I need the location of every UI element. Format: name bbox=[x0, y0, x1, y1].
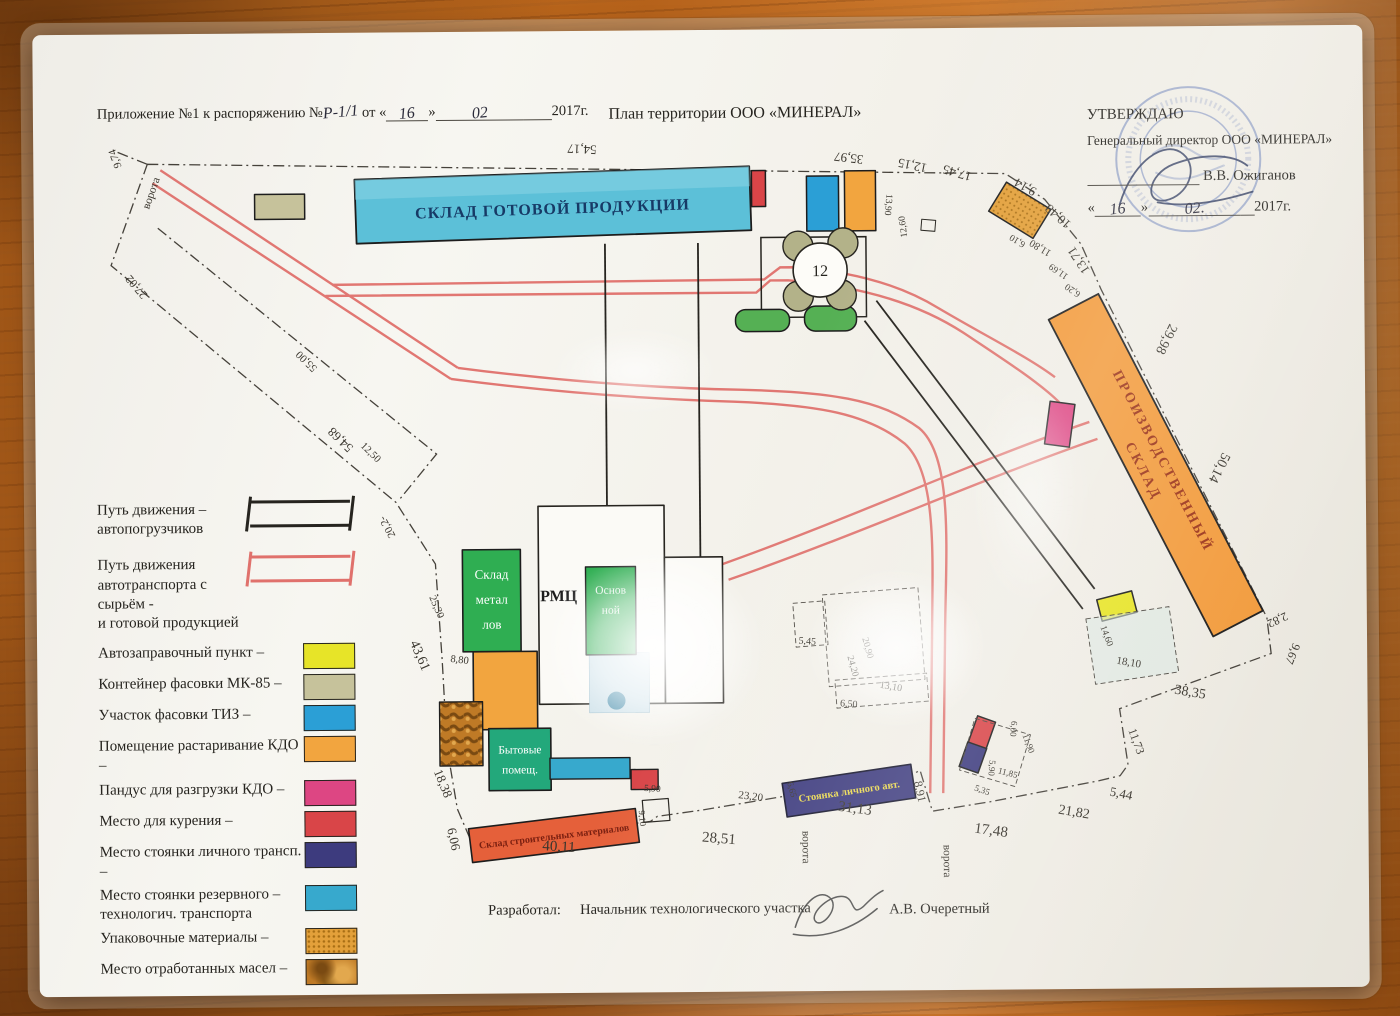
legend-item: Путь движенияавтотранспорта с сырьём -и … bbox=[97, 555, 355, 634]
legend-item: Путь движения –автопогрузчиков bbox=[97, 500, 354, 540]
annex-ot: от « bbox=[362, 104, 386, 120]
legend-item-symbol bbox=[305, 885, 357, 911]
dimension-label: 5,45 bbox=[798, 635, 816, 647]
dimension-label: 23,20 bbox=[738, 789, 765, 804]
dimension-label: 11,85 bbox=[997, 765, 1019, 780]
legend-item-label: Помещение растаривание КДО – bbox=[99, 736, 304, 776]
annex-line: Приложение №1 к распоряжению №Р-1/1 от «… bbox=[97, 102, 589, 124]
dimension-label: 9,10 bbox=[637, 810, 648, 827]
dimension-label: 27,02 bbox=[122, 272, 150, 302]
dimension-label: 31,13 bbox=[837, 799, 873, 819]
dimension-label: 13,10 bbox=[879, 680, 903, 695]
legend-item-label: Контейнер фасовки МК-85 – bbox=[98, 674, 303, 695]
legend-item: Контейнер фасовки МК-85 – bbox=[98, 674, 355, 702]
parking-box-br bbox=[959, 742, 987, 773]
building-label-metal-2: метал bbox=[476, 592, 509, 607]
smoking-box-top bbox=[751, 170, 765, 206]
dimension-label: 10,48 bbox=[1042, 201, 1074, 232]
dimension-label: 38,35 bbox=[1173, 683, 1207, 703]
director-name: В.В. Ожиганов bbox=[1203, 167, 1296, 184]
approval-date-line: «16»02.2017г. bbox=[1088, 198, 1388, 217]
dimension-label: 17,48 bbox=[973, 821, 1009, 841]
legend-item: Упаковочные материалы – bbox=[100, 928, 357, 956]
green-pad-2 bbox=[804, 306, 856, 331]
tank-cluster: 12 bbox=[783, 228, 859, 312]
dimension-label: 24,20 bbox=[845, 655, 860, 679]
kdo-box-top bbox=[844, 171, 875, 231]
legend-item-label: Место отработанных масел – bbox=[101, 959, 306, 980]
dimension-label: 50,14 bbox=[1205, 450, 1232, 485]
legend-item: Пандус для разгрузки КДО – bbox=[99, 779, 356, 807]
dimension-label: 8,80 bbox=[450, 654, 470, 667]
legend-item: Участок фасовки ТИЗ – bbox=[99, 705, 356, 733]
approval-month-handwritten: 02. bbox=[1183, 199, 1205, 219]
legend-item-symbol bbox=[304, 705, 356, 731]
dimension-label: 5,90 bbox=[644, 784, 661, 795]
dimension-label: 9,67 bbox=[1282, 642, 1303, 667]
gate-label: ворота bbox=[141, 176, 163, 211]
dimension-label: 13,90 bbox=[882, 194, 894, 216]
legend-item-symbol bbox=[250, 500, 350, 528]
annex-day-handwritten: 16 bbox=[399, 105, 417, 124]
legend-item-symbol bbox=[305, 841, 357, 867]
dimension-label: 29,98 bbox=[1152, 321, 1179, 356]
dimension-label: 6,20 bbox=[1063, 281, 1083, 299]
legend-item-label: Место стоянки личного трансп. – bbox=[100, 842, 305, 882]
building-label-byt-2: помещ. bbox=[502, 764, 538, 776]
legend-item-label: Путь движения –автопогрузчиков bbox=[97, 501, 250, 541]
dimension-label: 6,50 bbox=[840, 698, 858, 710]
legend-item-symbol bbox=[303, 674, 355, 700]
legend-item: Место для курения – bbox=[99, 810, 356, 838]
reserve-transport-strip bbox=[550, 758, 630, 780]
tiz-box bbox=[806, 176, 838, 231]
building-sklad-gotovoy-produkcii: СКЛАД ГОТОВОЙ ПРОДУКЦИИ bbox=[354, 166, 751, 243]
annex-month-handwritten: 02 bbox=[471, 104, 489, 123]
dimension-label: 11,80 bbox=[1028, 237, 1054, 259]
container-mk85-box bbox=[255, 194, 305, 219]
dimension-label: 55,00 bbox=[293, 348, 319, 374]
building-label-osnov-1: Основ bbox=[595, 585, 626, 597]
dimension-label: 6,00 bbox=[1008, 721, 1019, 738]
approval-day-handwritten: 16 bbox=[1109, 200, 1127, 219]
annex-close: » bbox=[428, 104, 435, 120]
legend-item-symbol bbox=[250, 555, 350, 583]
annex-number-handwritten: Р-1/1 bbox=[322, 102, 359, 123]
dimension-label: 8,91 bbox=[911, 780, 929, 804]
document-content: СКЛАД ГОТОВОЙ ПРОДУКЦИИ ПРОИЗВОДСТВЕННЫЙ… bbox=[0, 0, 1400, 1016]
gate-label: ворота bbox=[941, 845, 953, 878]
legend-item-symbol bbox=[303, 643, 355, 669]
dimension-label: 21,82 bbox=[1057, 803, 1091, 823]
legend-item-label: Путь движенияавтотранспорта с сырьём -и … bbox=[97, 556, 251, 634]
annex-prefix: Приложение №1 к распоряжению № bbox=[97, 105, 323, 123]
dimension-label: 11,73 bbox=[1125, 726, 1147, 756]
legend-item-symbol bbox=[304, 736, 356, 762]
approve-label: УТВЕРЖДАЮ bbox=[1087, 105, 1387, 124]
legend-item-label: Упаковочные материалы – bbox=[100, 928, 305, 949]
developer-name: А.В. Очеретный bbox=[889, 901, 990, 919]
page-title: План территории ООО «МИНЕРАЛ» bbox=[555, 103, 915, 124]
building-annex-block bbox=[664, 557, 723, 703]
dimension-label: 25,30 bbox=[426, 594, 445, 620]
dimension-label: 9,74 bbox=[106, 147, 124, 170]
dimension-label: 11,69 bbox=[1047, 261, 1070, 281]
green-pad-1 bbox=[735, 309, 789, 331]
tank-number-label: 12 bbox=[812, 263, 828, 280]
date-quote-open: « bbox=[1088, 200, 1095, 216]
pale-blue-spot bbox=[607, 692, 625, 710]
legend: Путь движения –автопогрузчиковПуть движе… bbox=[97, 500, 358, 992]
desk-photo: СКЛАД ГОТОВОЙ ПРОДУКЦИИ ПРОИЗВОДСТВЕННЫЙ… bbox=[0, 0, 1400, 1016]
legend-item-symbol bbox=[304, 779, 356, 805]
dimension-label: 11,90 bbox=[1021, 732, 1038, 755]
small-outline-boxes bbox=[638, 219, 941, 822]
ramp-kdo-box bbox=[1045, 401, 1075, 447]
dimension-label: 5,35 bbox=[973, 783, 992, 798]
director-line: Генеральный директор ООО «МИНЕРАЛ» bbox=[1087, 131, 1387, 149]
dimension-label: 6,06 bbox=[444, 826, 464, 852]
dimension-label: 20,90 bbox=[859, 637, 874, 661]
building-label-metal-3: лов bbox=[482, 617, 501, 632]
legend-item-label: Место для курения – bbox=[99, 811, 304, 832]
date-quote-close: » bbox=[1141, 199, 1148, 215]
legend-item: Помещение растаривание КДО – bbox=[99, 736, 356, 776]
dimension-label: 18,38 bbox=[431, 767, 456, 800]
building-label-rmc: РМЦ bbox=[540, 588, 578, 605]
building-label-metal-1: Склад bbox=[475, 567, 509, 582]
legend-item-symbol bbox=[305, 928, 357, 954]
legend-item-label: Автозаправочный пункт – bbox=[98, 643, 303, 664]
buildings-layer: СКЛАД ГОТОВОЙ ПРОДУКЦИИ ПРОИЗВОДСТВЕННЫЙ… bbox=[254, 162, 1264, 864]
legend-item: Место стоянки резервного –технологич. тр… bbox=[100, 885, 357, 925]
oil-waste-area bbox=[440, 702, 484, 766]
legend-item-label: Место стоянки резервного –технологич. тр… bbox=[100, 885, 305, 925]
legend-item-symbol bbox=[306, 959, 358, 985]
dimension-label: 2,82 bbox=[1265, 609, 1290, 631]
dimension-label: 20,2- bbox=[377, 514, 399, 540]
developer-title: Начальник технологического участка bbox=[580, 900, 811, 919]
developed-label: Разработал: bbox=[488, 902, 561, 920]
dimension-label: 12,60 bbox=[897, 215, 910, 238]
dashed-boxes bbox=[792, 585, 1179, 788]
legend-item: Место стоянки личного трансп. – bbox=[100, 841, 357, 881]
dimension-label: 54,17 bbox=[567, 141, 597, 157]
dimension-label: 5,44 bbox=[1109, 784, 1135, 803]
legend-item-label: Пандус для разгрузки КДО – bbox=[99, 780, 304, 801]
legend-item-label: Участок фасовки ТИЗ – bbox=[99, 705, 304, 726]
dimension-label: 54,68 bbox=[325, 424, 356, 455]
dimension-label: 17,45 bbox=[941, 162, 973, 185]
dimension-label: 40,11 bbox=[542, 838, 576, 856]
dimension-label: 43,61 bbox=[406, 638, 432, 673]
legend-item-symbol bbox=[304, 810, 356, 836]
legend-item: Место отработанных масел – bbox=[101, 959, 358, 987]
approval-year: 2017г. bbox=[1254, 198, 1291, 214]
legend-item: Автозаправочный пункт – bbox=[98, 643, 355, 671]
gate-label: ворота bbox=[800, 831, 812, 864]
approval-block: УТВЕРЖДАЮ Генеральный директор ООО «МИНЕ… bbox=[1087, 105, 1388, 217]
dimension-label: 28,51 bbox=[701, 830, 736, 849]
building-label-byt-1: Бытовые bbox=[498, 744, 541, 756]
building-label-osnov-2: ной bbox=[602, 605, 620, 617]
dimension-label: 12,50 bbox=[358, 441, 383, 465]
dimension-label: 5,90 bbox=[986, 760, 997, 777]
dimension-label: 12,15 bbox=[897, 155, 929, 176]
director-name-line: В.В. Ожиганов bbox=[1087, 167, 1387, 186]
dimension-label: 35,97 bbox=[833, 149, 864, 167]
building-bytovye bbox=[489, 728, 551, 790]
